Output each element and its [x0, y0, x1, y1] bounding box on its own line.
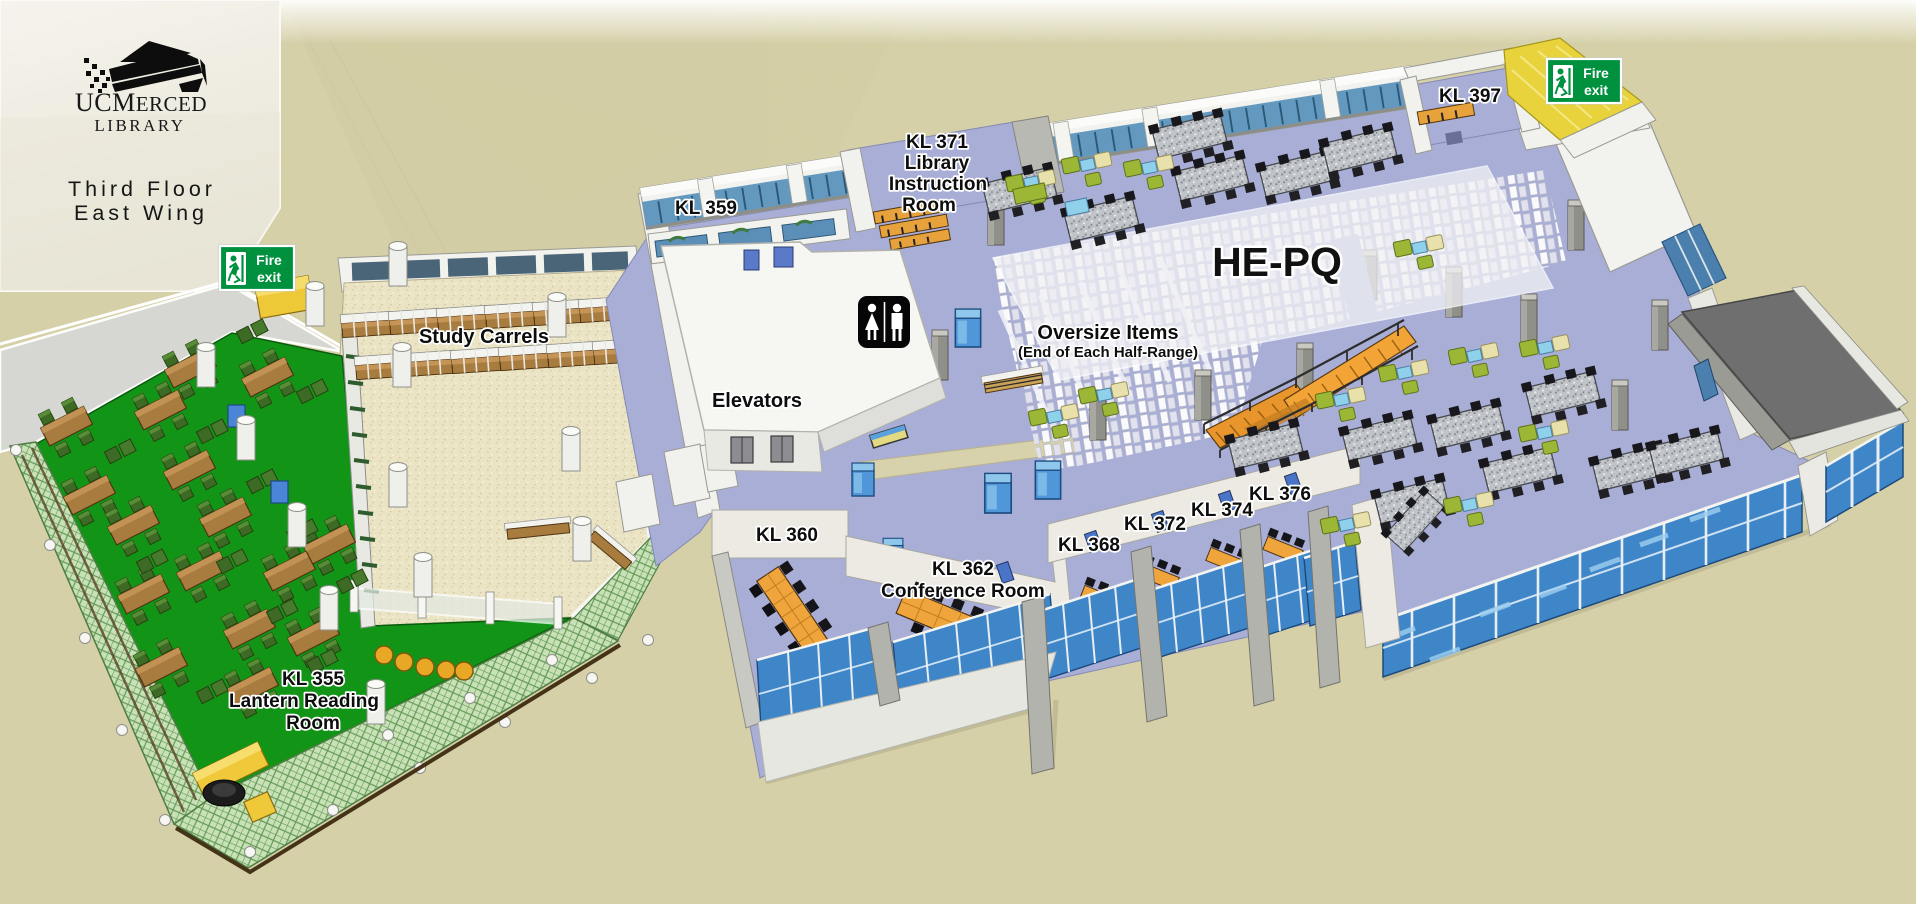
svg-text:KL 376: KL 376 [1249, 484, 1311, 505]
svg-text:KL 368: KL 368 [1058, 535, 1120, 556]
svg-text:UCMERCED: UCMERCED [75, 88, 207, 117]
svg-text:KL 397: KL 397 [1439, 86, 1501, 107]
svg-text:Study Carrels: Study Carrels [419, 326, 549, 348]
svg-text:KL 371: KL 371 [906, 132, 968, 153]
svg-text:Third Floor: Third Floor [68, 177, 216, 201]
svg-text:KL 362: KL 362 [932, 559, 994, 580]
svg-text:Library: Library [905, 153, 970, 174]
svg-text:East Wing: East Wing [74, 201, 208, 225]
svg-text:Instruction: Instruction [889, 174, 987, 195]
svg-text:KL 360: KL 360 [756, 525, 818, 546]
svg-text:Elevators: Elevators [712, 390, 802, 412]
svg-text:KL 355: KL 355 [282, 669, 344, 690]
svg-text:Conference Room: Conference Room [881, 581, 1045, 602]
svg-text:KL 374: KL 374 [1191, 500, 1253, 521]
svg-text:Room: Room [902, 195, 956, 216]
svg-text:Oversize Items: Oversize Items [1037, 322, 1178, 344]
svg-text:Room: Room [286, 713, 340, 734]
svg-text:LIBRARY: LIBRARY [94, 116, 185, 135]
svg-text:Lantern Reading: Lantern Reading [229, 691, 379, 712]
svg-text:KL 359: KL 359 [675, 198, 737, 219]
svg-text:HE-PQ: HE-PQ [1212, 239, 1342, 285]
svg-text:KL 372: KL 372 [1124, 514, 1186, 535]
svg-text:(End of Each Half-Range): (End of Each Half-Range) [1018, 344, 1198, 361]
